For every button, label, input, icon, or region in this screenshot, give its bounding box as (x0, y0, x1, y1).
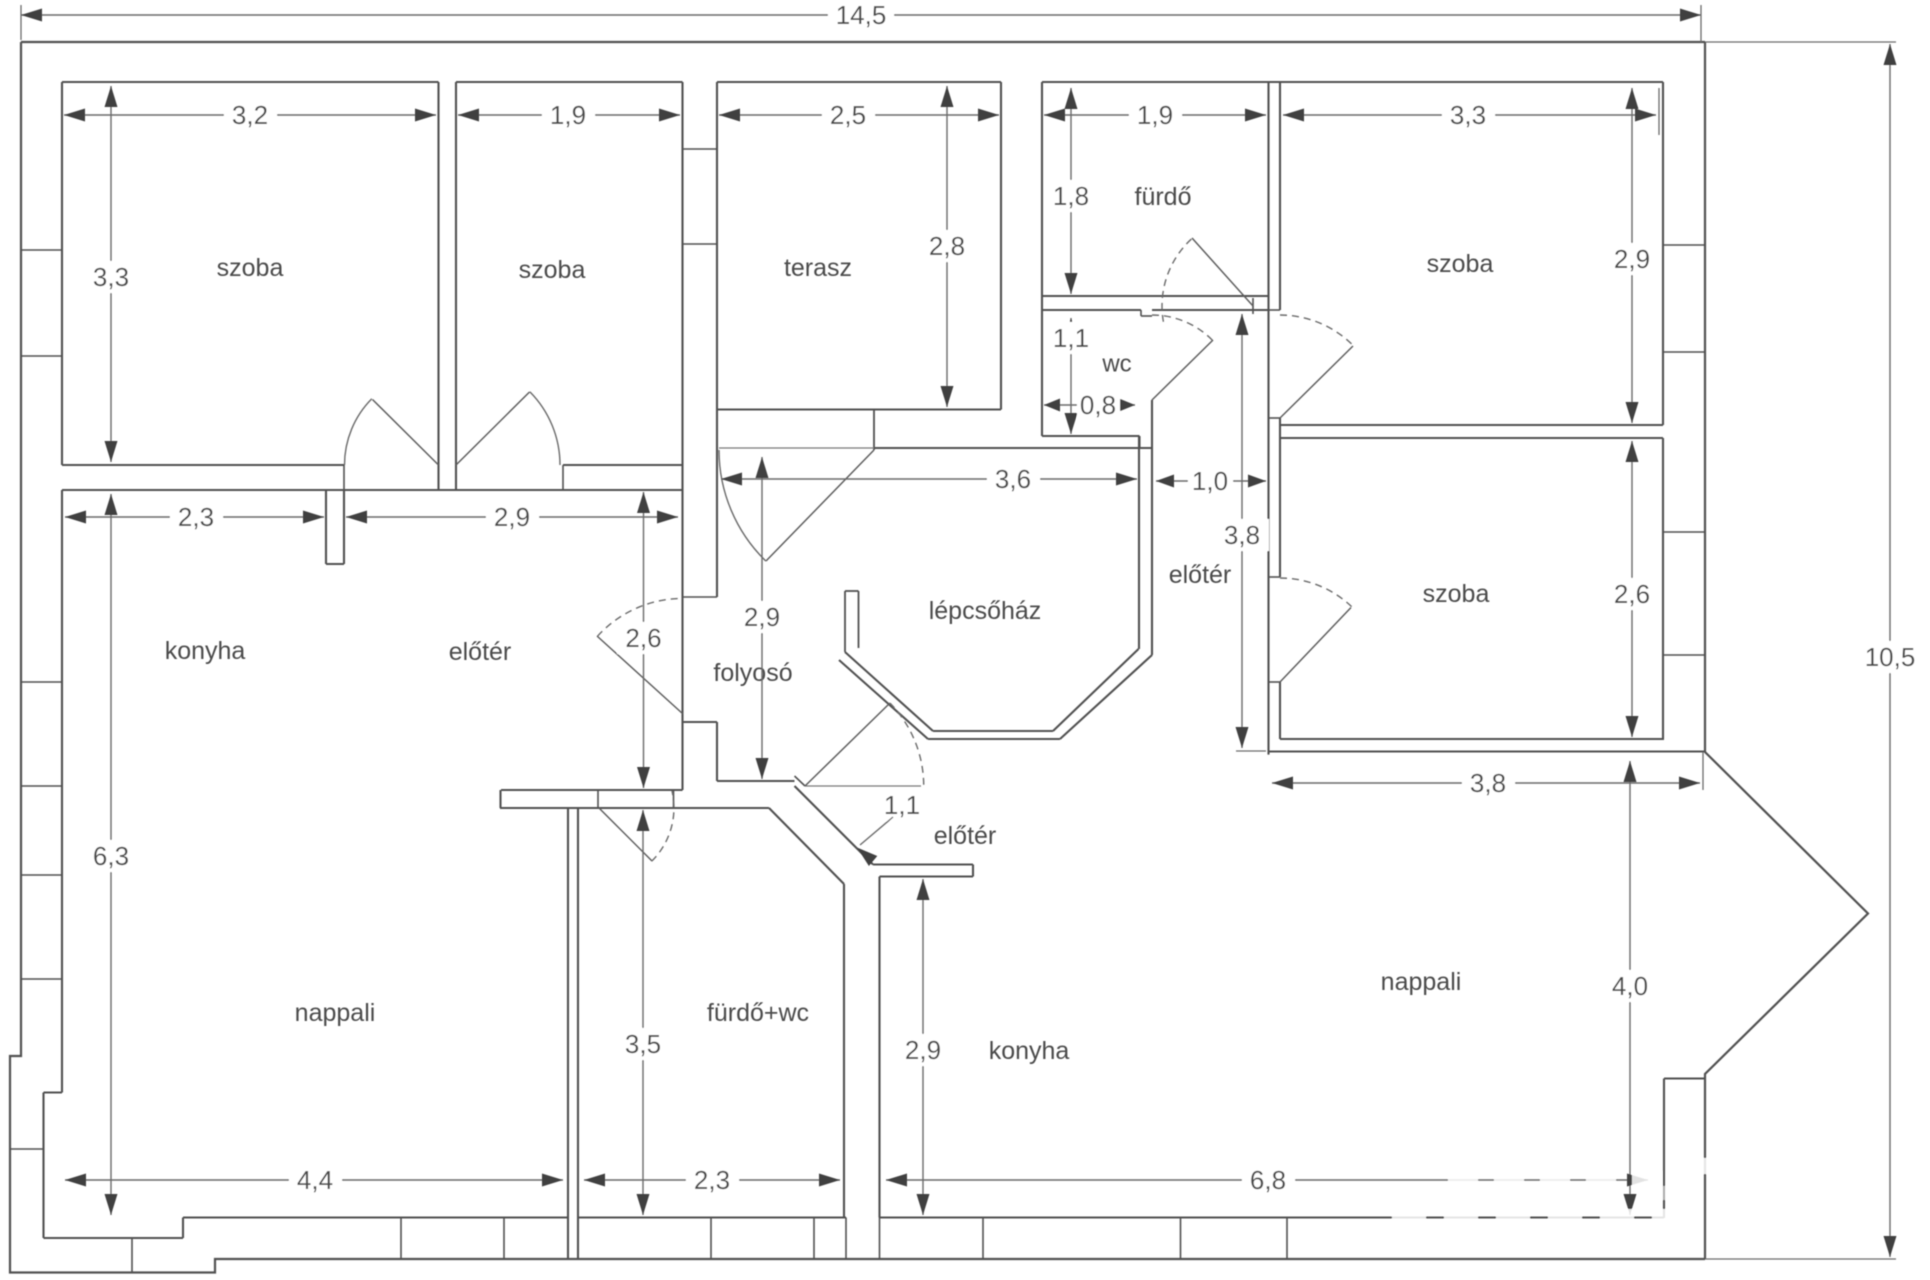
svg-text:4,4: 4,4 (297, 1165, 333, 1195)
svg-text:előtér: előtér (1169, 561, 1232, 589)
svg-text:6,8: 6,8 (1250, 1165, 1286, 1195)
svg-text:folyosó: folyosó (713, 659, 792, 687)
svg-text:3,5: 3,5 (625, 1029, 661, 1059)
svg-text:3,8: 3,8 (1224, 520, 1260, 550)
svg-text:nappali: nappali (1381, 968, 1462, 996)
svg-text:3,6: 3,6 (995, 464, 1031, 494)
svg-text:2,9: 2,9 (744, 602, 780, 632)
svg-text:2,3: 2,3 (178, 502, 214, 532)
svg-text:2,5: 2,5 (830, 100, 866, 130)
svg-text:3,3: 3,3 (1450, 100, 1486, 130)
svg-text:1,8: 1,8 (1053, 181, 1089, 211)
svg-text:szoba: szoba (1427, 250, 1494, 278)
svg-text:3,3: 3,3 (93, 262, 129, 292)
svg-text:14,5: 14,5 (836, 0, 887, 30)
svg-text:3,2: 3,2 (232, 100, 268, 130)
svg-text:szoba: szoba (519, 256, 586, 284)
svg-text:1,1: 1,1 (1053, 323, 1089, 353)
svg-text:3,8: 3,8 (1470, 768, 1506, 798)
svg-text:fürdő+wc: fürdő+wc (707, 999, 809, 1027)
svg-text:előtér: előtér (934, 822, 997, 850)
svg-text:konyha: konyha (989, 1037, 1070, 1065)
svg-text:wc: wc (1101, 351, 1131, 378)
svg-text:2,6: 2,6 (625, 623, 661, 653)
svg-text:előtér: előtér (449, 638, 512, 666)
svg-text:2,9: 2,9 (494, 502, 530, 532)
svg-text:2,9: 2,9 (1614, 244, 1650, 274)
svg-text:terasz: terasz (784, 254, 852, 282)
svg-text:fürdő: fürdő (1135, 183, 1192, 211)
svg-text:0,8: 0,8 (1080, 390, 1116, 420)
svg-text:1,1: 1,1 (884, 790, 920, 820)
svg-text:1,0: 1,0 (1192, 466, 1228, 496)
svg-text:2,9: 2,9 (905, 1035, 941, 1065)
svg-text:6,3: 6,3 (93, 841, 129, 871)
svg-text:nappali: nappali (295, 999, 376, 1027)
svg-text:10,5: 10,5 (1865, 642, 1916, 672)
svg-text:1,9: 1,9 (1137, 100, 1173, 130)
svg-text:szoba: szoba (1423, 580, 1490, 608)
svg-text:2,8: 2,8 (929, 231, 965, 261)
svg-text:1,9: 1,9 (550, 100, 586, 130)
svg-text:konyha: konyha (165, 637, 246, 665)
svg-text:lépcsőház: lépcsőház (929, 597, 1042, 625)
svg-text:szoba: szoba (217, 254, 284, 282)
svg-text:2,3: 2,3 (694, 1165, 730, 1195)
svg-text:4,0: 4,0 (1612, 971, 1648, 1001)
svg-text:2,6: 2,6 (1614, 579, 1650, 609)
